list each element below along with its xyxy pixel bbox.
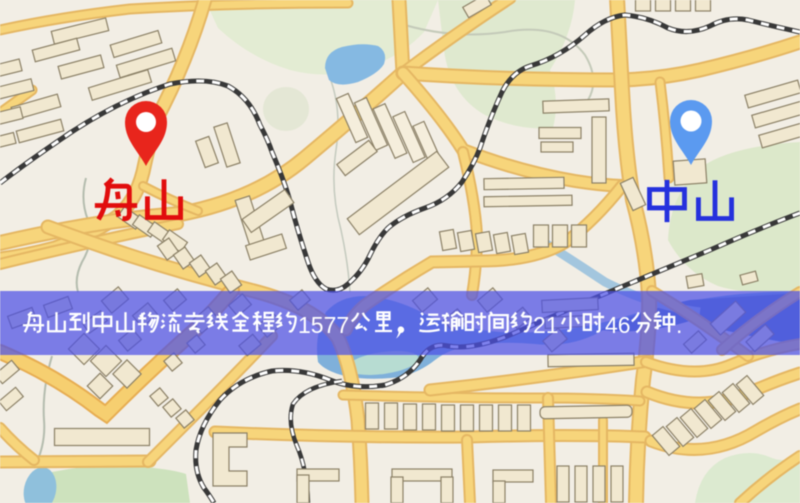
- svg-text:.: .: [676, 312, 682, 338]
- svg-text:1577: 1577: [298, 312, 349, 338]
- svg-text:21: 21: [533, 312, 559, 338]
- svg-text:46: 46: [605, 312, 631, 338]
